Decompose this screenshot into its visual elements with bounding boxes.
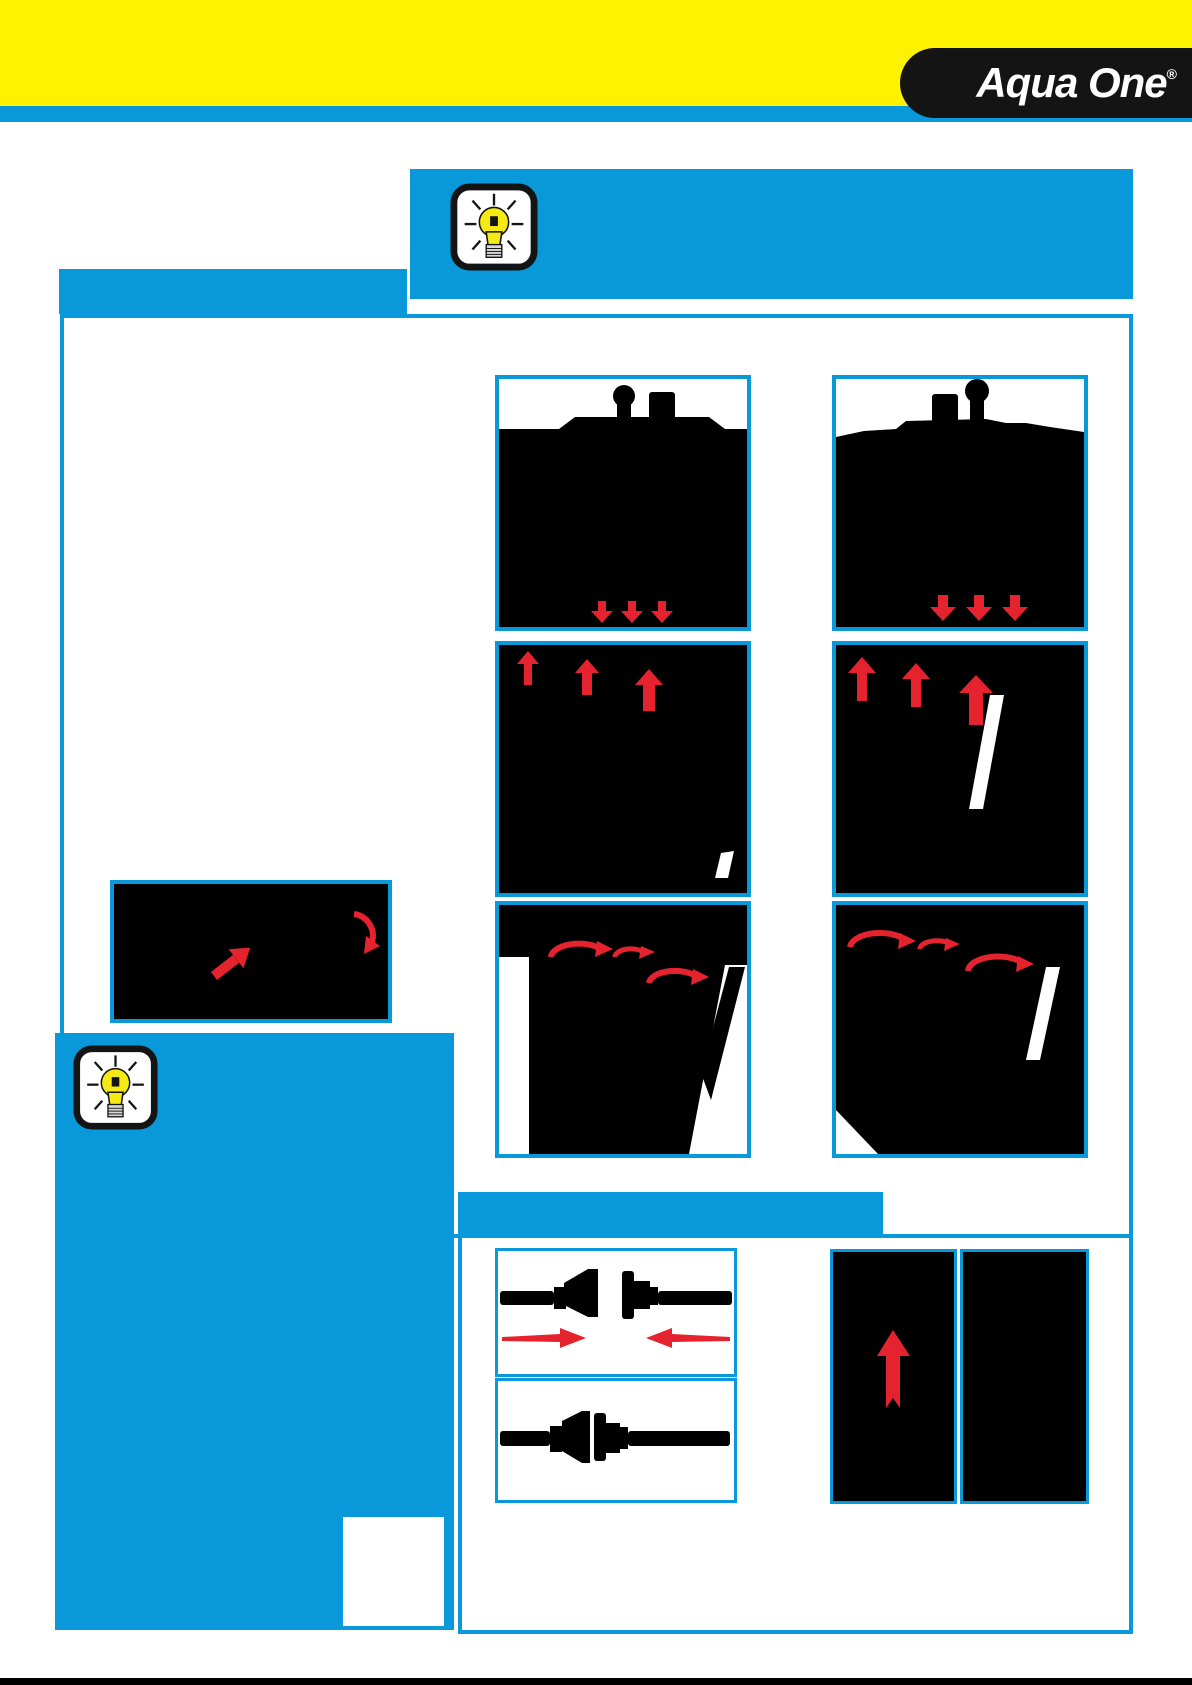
hose-connectors-joined-diagram: [498, 1381, 734, 1500]
lift-motor-diagram-1: [499, 645, 747, 893]
registered-mark-icon: ®: [1167, 66, 1176, 82]
illustration-panel-row2-col2: [832, 641, 1088, 897]
remove-basket-diagram-2: [836, 905, 1084, 1154]
illustration-panel-row3-col2: [832, 901, 1088, 1158]
illustration-panel-row2-col1: [495, 641, 751, 897]
mini-diagram-panel: [110, 880, 392, 1023]
bottom-section-tab: [458, 1192, 883, 1238]
lightbulb-icon: [73, 1045, 158, 1130]
illustration-panel-row1-col1: [495, 375, 751, 631]
canister-top-diagram-1: [499, 379, 747, 627]
illustration-panel-row1-col2: [832, 375, 1088, 631]
insert-direction-diagram: [833, 1252, 954, 1501]
brand-logo-text: Aqua One®: [976, 62, 1176, 104]
red-down-arrows: [930, 595, 1028, 621]
red-down-arrows: [591, 601, 673, 623]
remove-basket-diagram-1: [499, 905, 747, 1154]
hose-connect-panel: [495, 1248, 737, 1377]
lift-motor-diagram-2: [836, 645, 1084, 893]
hose-connectors-apart-diagram: [498, 1251, 734, 1374]
brand-logo-plate: Aqua One®: [900, 48, 1192, 118]
hose-connected-panel: [495, 1378, 737, 1503]
blue-text-panel: [55, 1033, 454, 1630]
footer-rule: [0, 1678, 1192, 1685]
manual-page: Aqua One®: [0, 0, 1192, 1685]
image-cutout: [343, 1517, 444, 1626]
red-horizontal-arrows: [502, 1328, 730, 1348]
illustration-panel-row3-col1: [495, 901, 751, 1158]
photo-panel-left: [830, 1249, 957, 1504]
lightbulb-icon: [450, 183, 538, 271]
red-ne-arrow: [207, 938, 258, 985]
canister-top-diagram-2: [836, 379, 1084, 627]
red-curved-arrow: [354, 914, 373, 942]
left-section-tab: [59, 269, 407, 314]
twist-open-diagram: [114, 884, 388, 1019]
photo-panel-right: [960, 1249, 1089, 1504]
red-up-arrow: [877, 1330, 910, 1408]
top-tip-panel: [410, 169, 1133, 299]
